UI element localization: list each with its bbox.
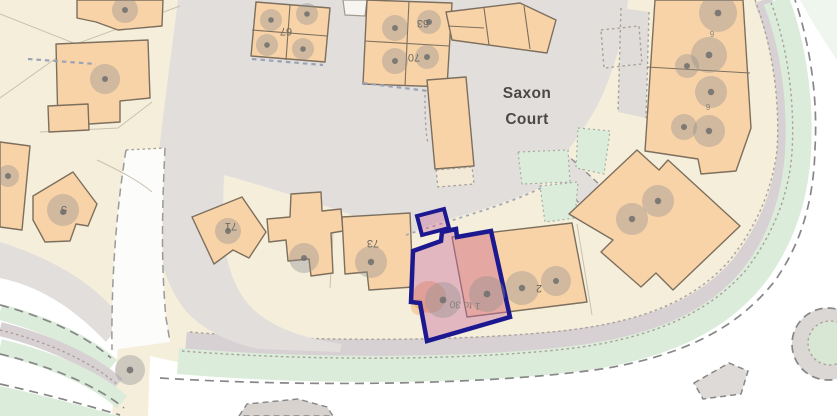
- building-block-63-70[interactable]: [363, 0, 452, 87]
- tree-icon: [382, 15, 408, 41]
- tree-icon: [541, 266, 571, 296]
- tree-icon: [693, 115, 725, 147]
- tree-icon: [675, 54, 699, 78]
- tree-icon: [382, 48, 408, 74]
- house-number-5: 5: [61, 203, 67, 215]
- building-annex-dotted: [436, 167, 474, 187]
- tree-icon: [296, 3, 318, 25]
- tree-icon: [260, 9, 282, 31]
- tree-icon: [505, 271, 539, 305]
- place-label-line2: Court: [505, 111, 548, 128]
- house-number-63: 63: [417, 17, 429, 29]
- map-canvas[interactable]: Saxon Court 67 63 70 71 73 5 1 to 30 2 6…: [0, 0, 837, 416]
- place-label-line1: Saxon: [503, 85, 552, 102]
- tree-icon: [115, 355, 145, 385]
- building-west-annex[interactable]: [48, 104, 89, 132]
- building-tall-block[interactable]: [427, 77, 474, 169]
- green-patch: [518, 150, 570, 184]
- house-number-2: 2: [536, 282, 542, 294]
- house-number-70: 70: [408, 51, 420, 63]
- green-patch: [576, 128, 610, 174]
- flats-glyph-a: 6: [709, 29, 714, 38]
- small-structure: [343, 0, 367, 16]
- tree-icon: [355, 246, 387, 278]
- tree-icon: [642, 185, 674, 217]
- tree-icon: [616, 203, 648, 235]
- flats-range-label: 1 to 30: [449, 298, 481, 311]
- tree-icon: [90, 64, 120, 94]
- tree-icon: [292, 38, 314, 60]
- tree-icon: [256, 34, 278, 56]
- flats-glyph-b: 6: [705, 102, 710, 111]
- house-number-67: 67: [280, 25, 292, 37]
- footpath-east-strip: [618, 8, 649, 118]
- tree-icon: [289, 243, 319, 273]
- house-number-71: 71: [225, 220, 237, 232]
- house-number-73: 73: [367, 237, 379, 249]
- tree-icon: [671, 114, 697, 140]
- strip-surface: [618, 8, 649, 118]
- map-viewport[interactable]: Saxon Court 67 63 70 71 73 5 1 to 30 2 6…: [0, 0, 837, 416]
